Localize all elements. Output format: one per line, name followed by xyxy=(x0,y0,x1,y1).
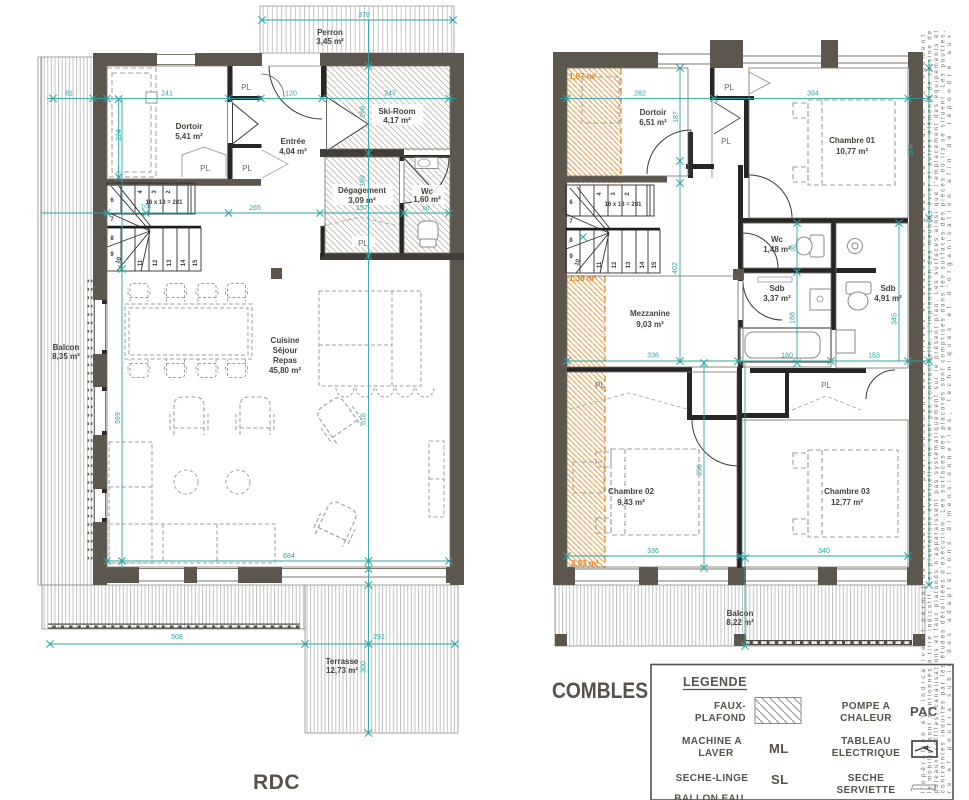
svg-text:1,60 m²: 1,60 m² xyxy=(413,195,441,204)
svg-text:POMPE A: POMPE A xyxy=(842,701,891,712)
svg-text:MACHINE A: MACHINE A xyxy=(682,736,742,747)
svg-text:12: 12 xyxy=(612,261,618,268)
svg-text:282: 282 xyxy=(634,91,646,98)
svg-text:3,45 m²: 3,45 m² xyxy=(316,37,344,46)
svg-text:CHALEUR: CHALEUR xyxy=(840,713,892,724)
svg-text:13: 13 xyxy=(167,259,173,266)
svg-text:3,09 m²: 3,09 m² xyxy=(348,196,376,205)
svg-text:199: 199 xyxy=(360,175,367,187)
svg-text:336: 336 xyxy=(647,353,659,360)
svg-text:188: 188 xyxy=(790,312,797,324)
svg-text:153: 153 xyxy=(868,353,880,360)
svg-text:Dortoir: Dortoir xyxy=(176,122,203,131)
svg-text:BALLON EAU: BALLON EAU xyxy=(674,794,744,800)
svg-text:16 x 18 = 281: 16 x 18 = 281 xyxy=(605,202,643,208)
svg-text:340: 340 xyxy=(818,548,830,555)
svg-text:PL: PL xyxy=(200,164,210,173)
svg-text:599: 599 xyxy=(115,412,122,424)
svg-text:90: 90 xyxy=(791,244,797,251)
svg-text:Perron: Perron xyxy=(317,28,343,37)
svg-text:4,91 m²: 4,91 m² xyxy=(874,294,902,303)
svg-text:14: 14 xyxy=(640,261,646,268)
svg-text:Terrasse: Terrasse xyxy=(326,657,359,666)
svg-text:247: 247 xyxy=(384,91,396,98)
svg-text:394: 394 xyxy=(807,91,819,98)
svg-text:15: 15 xyxy=(652,261,658,268)
svg-text:Repas: Repas xyxy=(273,356,298,365)
svg-text:345: 345 xyxy=(892,313,899,325)
svg-text:Cuisine: Cuisine xyxy=(271,336,300,345)
svg-text:45,80 m²: 45,80 m² xyxy=(269,366,301,375)
svg-text:1,48 m²: 1,48 m² xyxy=(763,245,791,254)
svg-text:ML: ML xyxy=(769,741,789,756)
svg-text:SL: SL xyxy=(771,772,788,787)
svg-text:12,73 m²: 12,73 m² xyxy=(326,666,358,675)
svg-text:Balcon: Balcon xyxy=(727,609,754,618)
svg-text:PL: PL xyxy=(724,83,734,92)
svg-text:Ski-Room: Ski-Room xyxy=(378,107,415,116)
svg-text:378: 378 xyxy=(358,12,370,19)
svg-text:157: 157 xyxy=(356,205,368,212)
svg-text:11: 11 xyxy=(138,259,144,266)
svg-text:81: 81 xyxy=(65,91,73,98)
svg-text:304: 304 xyxy=(908,144,915,156)
svg-text:Mezzanine: Mezzanine xyxy=(630,309,671,318)
svg-text:Séjour: Séjour xyxy=(273,346,298,355)
svg-text:11: 11 xyxy=(597,261,603,268)
svg-text:13: 13 xyxy=(626,261,632,268)
svg-text:Wc: Wc xyxy=(771,235,784,244)
svg-text:PL: PL xyxy=(242,164,252,173)
svg-text:396: 396 xyxy=(697,464,704,476)
svg-text:105: 105 xyxy=(141,205,152,211)
svg-text:Chambre 03: Chambre 03 xyxy=(824,487,870,496)
svg-text:LEGENDE: LEGENDE xyxy=(683,675,747,689)
svg-text:LAVER: LAVER xyxy=(698,748,734,759)
svg-text:6,51 m²: 6,51 m² xyxy=(639,118,667,127)
svg-text:15: 15 xyxy=(193,259,199,266)
svg-text:265: 265 xyxy=(249,205,261,212)
svg-text:Dortoir: Dortoir xyxy=(640,108,667,117)
svg-text:1,67 m²: 1,67 m² xyxy=(569,72,597,81)
svg-text:187: 187 xyxy=(673,111,680,123)
svg-text:16 x 18 = 281: 16 x 18 = 281 xyxy=(146,200,184,206)
svg-text:2,93 m²: 2,93 m² xyxy=(571,559,599,568)
svg-text:80: 80 xyxy=(423,207,430,213)
svg-text:ELECTRIQUE: ELECTRIQUE xyxy=(832,748,900,759)
svg-text:Chambre 02: Chambre 02 xyxy=(608,487,654,496)
svg-text:10,77 m²: 10,77 m² xyxy=(836,147,868,156)
svg-text:336: 336 xyxy=(647,548,659,555)
svg-text:291: 291 xyxy=(373,634,385,641)
svg-text:8,35 m²: 8,35 m² xyxy=(52,352,80,361)
svg-text:5,41 m²: 5,41 m² xyxy=(175,132,203,141)
svg-text:180: 180 xyxy=(781,353,793,360)
svg-text:12,77 m²: 12,77 m² xyxy=(831,498,863,507)
svg-text:SECHE: SECHE xyxy=(848,773,884,784)
svg-text:8,22 m²: 8,22 m² xyxy=(726,618,754,627)
svg-text:PL: PL xyxy=(595,381,605,390)
svg-text:3,37 m²: 3,37 m² xyxy=(763,294,791,303)
svg-text:402: 402 xyxy=(672,262,679,274)
svg-text:12: 12 xyxy=(153,259,159,266)
svg-text:TABLEAU: TABLEAU xyxy=(841,736,891,747)
svg-text:PLAFOND: PLAFOND xyxy=(695,713,746,724)
svg-text:PL: PL xyxy=(721,137,731,146)
svg-text:508: 508 xyxy=(171,634,183,641)
svg-text:Balcon: Balcon xyxy=(53,343,80,352)
svg-text:Sdb: Sdb xyxy=(769,284,784,293)
svg-text:1,38 m²: 1,38 m² xyxy=(569,274,597,283)
svg-text:PL: PL xyxy=(241,83,251,92)
svg-text:9,03 m²: 9,03 m² xyxy=(636,320,664,329)
svg-text:RDC: RDC xyxy=(253,771,300,794)
svg-text:PL: PL xyxy=(358,239,368,248)
svg-text:poteaux, soffites, canalisatio: poteaux, soffites, canalisations et faux… xyxy=(934,31,940,793)
svg-text:684: 684 xyxy=(283,553,295,560)
svg-text:300: 300 xyxy=(361,661,368,673)
svg-text:4,04 m²: 4,04 m² xyxy=(279,147,307,156)
svg-text:168: 168 xyxy=(360,106,367,118)
svg-text:618: 618 xyxy=(361,413,368,425)
svg-text:14: 14 xyxy=(181,259,187,266)
svg-text:9,43 m²: 9,43 m² xyxy=(617,498,645,507)
svg-text:120: 120 xyxy=(285,91,297,98)
svg-text:4,17 m²: 4,17 m² xyxy=(383,116,411,125)
svg-text:Entrée: Entrée xyxy=(281,137,306,146)
svg-text:SECHE-LINGE: SECHE-LINGE xyxy=(676,773,749,784)
svg-text:Chambre 01: Chambre 01 xyxy=(829,136,875,145)
svg-text:FAUX-: FAUX- xyxy=(714,701,746,712)
svg-text:COMBLES: COMBLES xyxy=(552,678,648,703)
svg-text:241: 241 xyxy=(161,91,173,98)
svg-text:Sdb: Sdb xyxy=(880,284,895,293)
svg-text:PL: PL xyxy=(821,381,831,390)
svg-text:SERVIETTE: SERVIETTE xyxy=(837,785,896,796)
svg-text:224: 224 xyxy=(116,129,123,141)
